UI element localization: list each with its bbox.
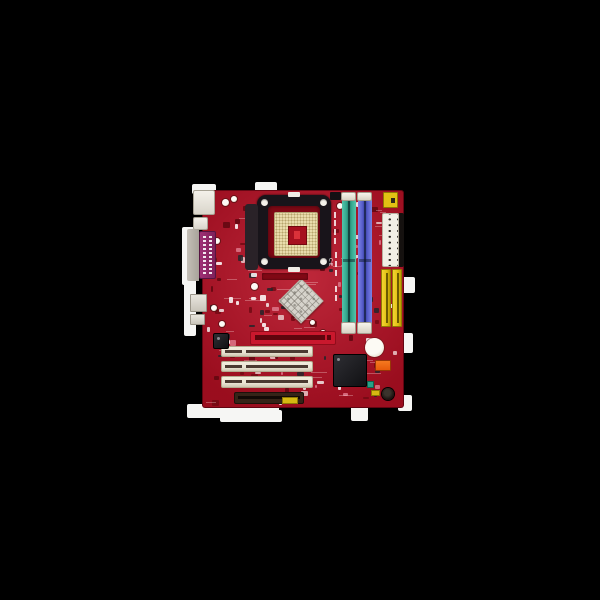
pci-slot-2 bbox=[221, 361, 313, 372]
vrm-capacitor-strip bbox=[245, 204, 258, 270]
parallel-port-bracket bbox=[187, 229, 199, 281]
slot-slit bbox=[246, 380, 308, 383]
pci-slot-1 bbox=[221, 346, 313, 357]
frame-tab bbox=[288, 267, 300, 272]
photo-background-patch bbox=[220, 410, 282, 422]
usb-connector bbox=[190, 314, 205, 325]
northbridge-heatsink bbox=[278, 278, 323, 323]
slot-slit bbox=[386, 273, 388, 323]
slot-key bbox=[327, 335, 331, 340]
agp-slot bbox=[250, 331, 336, 345]
yellow-edge-component bbox=[282, 397, 298, 404]
atx-connector-side bbox=[399, 213, 404, 267]
socket-center bbox=[294, 231, 300, 239]
dimm-slot-2 bbox=[358, 199, 372, 325]
dimm-latch bbox=[357, 322, 372, 334]
green-component bbox=[367, 381, 374, 388]
dimm-notch bbox=[343, 259, 355, 262]
slot-slit bbox=[225, 365, 242, 368]
ps2-connector-stack bbox=[193, 190, 215, 215]
dimm-groove bbox=[348, 201, 350, 323]
slot-slit bbox=[225, 380, 242, 383]
slot-slit bbox=[246, 365, 308, 368]
motherboard-pcb bbox=[202, 190, 404, 408]
mount-hole bbox=[261, 258, 268, 265]
slot-slit bbox=[225, 350, 242, 353]
southbridge-chip bbox=[333, 354, 367, 387]
dimm-latch bbox=[341, 322, 356, 334]
dimm-slot-1 bbox=[342, 199, 356, 325]
fan-header bbox=[330, 192, 341, 200]
slot-slit bbox=[246, 350, 308, 353]
buzzer bbox=[382, 388, 394, 400]
dimm-notch bbox=[359, 259, 371, 262]
io-chip bbox=[213, 333, 229, 349]
cmos-battery bbox=[365, 338, 384, 357]
dimm-latch bbox=[341, 192, 356, 201]
mount-hole bbox=[320, 199, 327, 206]
yellow-small-component bbox=[371, 390, 380, 396]
atx-power-connector bbox=[382, 213, 399, 267]
cpu-socket-478 bbox=[274, 212, 318, 256]
usb-connector-block bbox=[190, 294, 207, 312]
frame-tab bbox=[288, 192, 300, 197]
pin1-dot bbox=[337, 358, 340, 361]
slot-slit bbox=[255, 335, 325, 340]
mount-hole bbox=[261, 199, 268, 206]
dimm-latch bbox=[357, 192, 372, 201]
socket-cavity bbox=[288, 226, 307, 245]
parallel-port bbox=[199, 231, 216, 279]
component-layer bbox=[202, 190, 404, 408]
port-pins bbox=[203, 236, 206, 274]
product-photo: CE bbox=[0, 0, 600, 600]
ce-mark: CE bbox=[324, 258, 334, 284]
dimm-groove bbox=[364, 201, 366, 323]
orange-component bbox=[375, 360, 391, 371]
yellow-component bbox=[383, 192, 398, 208]
slot-slit bbox=[397, 273, 399, 323]
yellow-slot-2 bbox=[392, 269, 402, 327]
yellow-slot-1 bbox=[381, 269, 391, 327]
component-dot bbox=[391, 198, 395, 203]
pin1-dot bbox=[217, 337, 220, 340]
port-pins bbox=[209, 236, 212, 274]
header-bar bbox=[262, 273, 308, 280]
pci-slot-3 bbox=[221, 376, 313, 388]
